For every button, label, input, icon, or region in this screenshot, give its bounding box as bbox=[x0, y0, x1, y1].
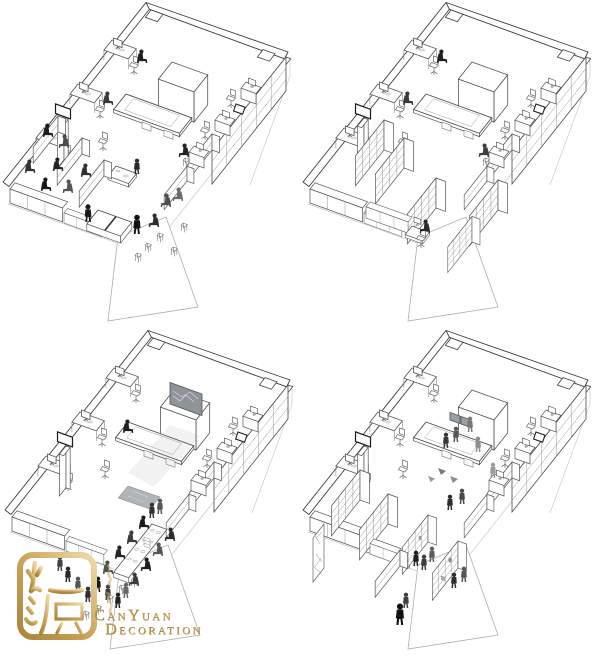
axonometric-panel-top-left bbox=[0, 0, 300, 332]
page-canvas: CANYUAN DECORATION bbox=[0, 0, 600, 659]
watermark-canyuan-decoration: CANYUAN DECORATION bbox=[6, 532, 236, 659]
display-vase bbox=[419, 536, 422, 540]
display-vase bbox=[448, 557, 451, 562]
axonometric-panel-bottom-right bbox=[300, 328, 600, 659]
brand-line-decoration: DECORATION bbox=[105, 622, 203, 638]
model-object bbox=[450, 476, 458, 483]
brand-wordmark: CANYUAN DECORATION bbox=[6, 532, 236, 659]
model-object bbox=[438, 468, 446, 475]
model-object bbox=[428, 476, 435, 482]
axonometric-panel-top-right bbox=[300, 0, 600, 332]
